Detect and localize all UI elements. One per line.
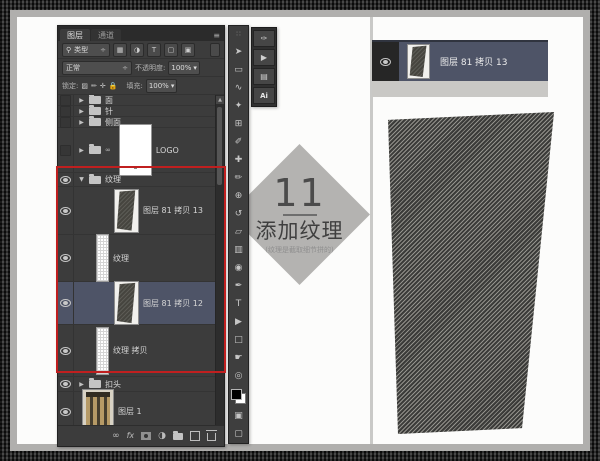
eye-icon [380, 58, 391, 66]
visibility-toggle[interactable] [58, 117, 74, 127]
pen-tool-icon[interactable]: ✒ [229, 281, 248, 292]
visibility-toggle[interactable] [58, 106, 74, 116]
folder-icon [89, 146, 101, 154]
layer-name: 图层 81 拷贝 13 [440, 55, 508, 68]
opacity-value: 100% [171, 64, 191, 72]
folder-icon [89, 118, 101, 126]
folder-icon [89, 107, 101, 115]
eye-off-icon [60, 95, 71, 106]
filter-kind-label: 类型 [74, 45, 88, 55]
color-swatches[interactable] [231, 389, 246, 404]
brush-tool-icon[interactable]: ✏ [229, 173, 248, 184]
eyedropper-tool-icon[interactable]: ✐ [229, 137, 248, 148]
clone-stamp-tool-icon[interactable]: ⊕ [229, 191, 248, 202]
group-row-mian[interactable]: ▶ 面 [58, 95, 216, 106]
lock-all-icon[interactable]: 🔒 [109, 82, 118, 90]
eye-off-icon [60, 117, 71, 128]
pixel-filter-icon[interactable]: ▦ [113, 43, 127, 57]
group-row-zhen[interactable]: ▶ 针 [58, 106, 216, 117]
stepper-icon: ÷ [100, 46, 106, 54]
shape-filter-icon[interactable]: ▢ [164, 43, 178, 57]
gradient-tool-icon[interactable]: ▥ [229, 245, 248, 256]
path-selection-tool-icon[interactable]: ▶ [229, 317, 248, 328]
blend-row: 正常 ÷ 不透明度: 100% ▾ [58, 59, 224, 77]
link-icon: ∞ [105, 146, 111, 154]
chevron-down-icon: ▾ [193, 64, 197, 72]
blend-mode-select[interactable]: 正常 ÷ [62, 61, 132, 75]
visibility-toggle[interactable] [58, 95, 74, 105]
fill-input[interactable]: 100% ▾ [146, 79, 178, 93]
add-mask-icon[interactable] [141, 432, 151, 440]
zoom-tool-icon[interactable]: ◎ [229, 371, 248, 382]
actions-panel-icon[interactable]: ▶ [253, 49, 275, 66]
search-icon: ⚲ [66, 46, 71, 54]
lock-transparency-icon[interactable]: ▨ [81, 82, 88, 90]
layer-row-1[interactable]: 图层 1 [58, 392, 216, 425]
visibility-toggle[interactable] [372, 42, 399, 81]
expand-icon[interactable]: ▶ [78, 381, 85, 388]
folder-icon [89, 380, 101, 388]
step-subtitle: (纹理是截取细节拼的) [265, 245, 333, 255]
lock-label: 锁定: [62, 81, 78, 91]
new-layer-icon[interactable] [190, 431, 200, 441]
expand-icon[interactable]: ▶ [78, 147, 85, 154]
delete-layer-icon[interactable] [207, 433, 216, 441]
styles-panel-icon[interactable]: ▤ [253, 68, 275, 85]
opacity-input[interactable]: 100% ▾ [168, 61, 200, 75]
filter-kind-select[interactable]: ⚲ 类型 ÷ [62, 43, 110, 57]
texture-group-highlight-box [56, 166, 226, 373]
group-name: LOGO [156, 146, 179, 155]
layer-name: 图层 1 [118, 406, 142, 417]
panel-tabbar: 图层 通道 ≡ [58, 26, 224, 41]
folder-icon [89, 96, 101, 104]
filter-row: ⚲ 类型 ÷ ▦ ◑ T ▢ ▣ [58, 41, 224, 59]
smart-object-filter-icon[interactable]: ▣ [181, 43, 195, 57]
selected-layer-excerpt: 图层 81 拷贝 13 [372, 40, 548, 97]
lasso-tool-icon[interactable]: ∿ [229, 83, 248, 94]
group-name: 面 [105, 95, 113, 106]
quick-mask-icon[interactable]: ▣ [229, 411, 248, 422]
toolbar-grip[interactable]: ∷ [229, 29, 248, 40]
panel-dock: ✑ ▶ ▤ Ai [251, 27, 277, 107]
blend-mode-value: 正常 [66, 63, 80, 73]
eye-icon [60, 408, 71, 416]
excerpt-layer-row[interactable]: 图层 81 拷贝 13 [372, 40, 548, 81]
blur-tool-icon[interactable]: ◉ [229, 263, 248, 274]
ai-panel-icon[interactable]: Ai [253, 87, 275, 104]
move-tool-icon[interactable]: ➤ [229, 47, 248, 58]
step-number: 11 [273, 175, 325, 211]
tab-channels[interactable]: 通道 [91, 29, 121, 41]
expand-icon[interactable]: ▶ [78, 97, 85, 104]
type-filter-icon[interactable]: T [147, 43, 161, 57]
panel-menu-icon[interactable]: ≡ [213, 31, 220, 41]
eye-icon [60, 380, 71, 388]
layer-thumbnail[interactable] [82, 389, 114, 426]
lock-row: 锁定: ▨ ✏ ✛ 🔒 填充: 100% ▾ [58, 77, 224, 95]
stepper-icon: ÷ [122, 64, 128, 72]
fill-value: 100% [149, 82, 169, 90]
link-layers-icon[interactable]: ∞ [112, 431, 120, 441]
screen-mode-icon[interactable]: ▢ [229, 429, 248, 440]
marquee-tool-icon[interactable]: ▭ [229, 65, 248, 76]
opacity-label: 不透明度: [135, 63, 165, 73]
eraser-tool-icon[interactable]: ▱ [229, 227, 248, 238]
step-title: 添加纹理 [256, 220, 344, 243]
tutorial-page: 图层 通道 ≡ ⚲ 类型 ÷ ▦ ◑ T ▢ ▣ 正常 ÷ 不透明度: 100% [0, 0, 600, 461]
lock-pixels-icon[interactable]: ✏ [91, 82, 97, 90]
eye-off-icon [60, 106, 71, 117]
foreground-color-swatch[interactable] [231, 389, 242, 400]
healing-brush-tool-icon[interactable]: ✚ [229, 155, 248, 166]
scroll-up-arrow[interactable]: ▲ [216, 96, 224, 104]
filter-toggle[interactable] [210, 43, 220, 57]
group-name: 针 [105, 106, 113, 117]
shape-tool-icon[interactable]: □ [229, 335, 248, 346]
adjustment-layer-icon[interactable]: ◑ [158, 431, 166, 441]
tools-panel: ∷ ➤ ▭ ∿ ✦ ⊞ ✐ ✚ ✏ ⊕ ↺ ▱ ▥ ◉ ✒ T ▶ □ ☛ ◎ … [228, 25, 249, 444]
lock-position-icon[interactable]: ✛ [100, 82, 106, 90]
adjustment-filter-icon[interactable]: ◑ [130, 43, 144, 57]
layers-panel-footer: ∞ fx ◑ [58, 425, 224, 446]
new-group-icon[interactable] [173, 433, 183, 440]
brush-panel-icon[interactable]: ✑ [253, 30, 275, 47]
type-tool-icon[interactable]: T [229, 299, 248, 310]
visibility-toggle[interactable] [58, 392, 74, 425]
chevron-down-icon: ▾ [171, 82, 175, 90]
expand-icon[interactable]: ▶ [78, 108, 85, 115]
badge-divider [283, 214, 317, 216]
tab-layers[interactable]: 图层 [60, 29, 90, 41]
quick-selection-tool-icon[interactable]: ✦ [229, 101, 248, 112]
crop-tool-icon[interactable]: ⊞ [229, 119, 248, 130]
history-brush-tool-icon[interactable]: ↺ [229, 209, 248, 220]
excerpt-bottom-strip [372, 81, 548, 97]
visibility-toggle[interactable] [58, 377, 74, 391]
layer-style-icon[interactable]: fx [127, 431, 135, 441]
hand-tool-icon[interactable]: ☛ [229, 353, 248, 364]
eye-off-icon [60, 145, 71, 156]
fill-label: 填充: [126, 81, 142, 91]
layer-thumbnail[interactable] [407, 44, 430, 79]
